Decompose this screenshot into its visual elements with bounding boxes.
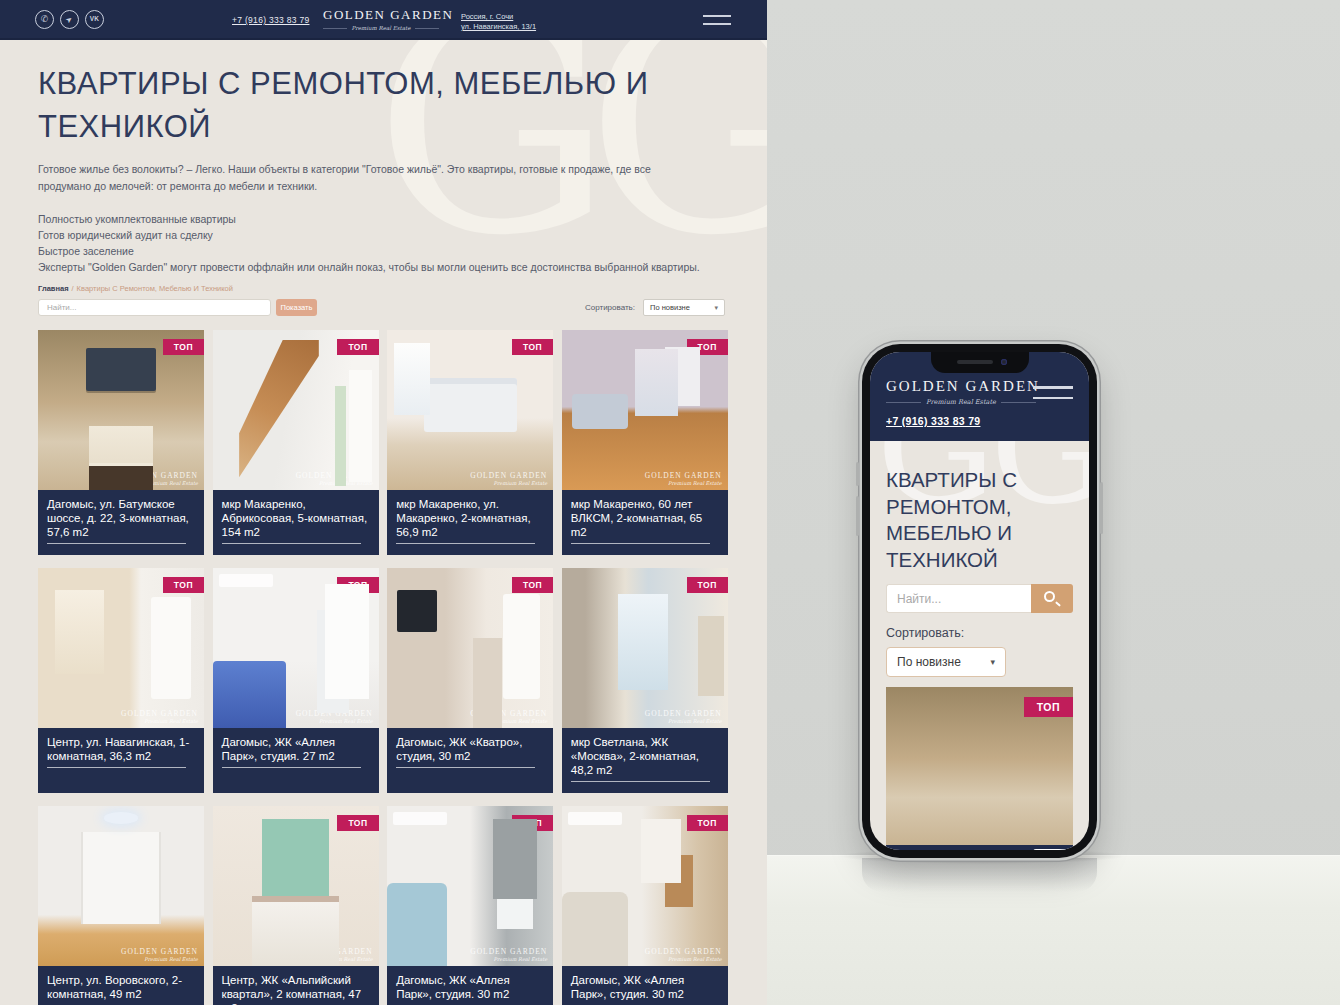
listing-title-link[interactable]: Дагомыс, ЖК «Аллея Парк», студия. 30 m2 xyxy=(571,974,684,1000)
hamburger-menu-icon[interactable] xyxy=(703,15,731,31)
chevron-down-icon: ▾ xyxy=(714,304,718,312)
listing-card[interactable]: ТОП GOLDEN GARDENPremium Real Estate Цен… xyxy=(38,568,204,793)
caption-underline xyxy=(396,543,535,544)
photo-watermark: GOLDEN GARDENPremium Real Estate xyxy=(470,947,547,962)
mobile-search-row xyxy=(886,584,1073,613)
mobile-sort-selected-value: По новизне xyxy=(897,655,961,669)
listing-title-link[interactable]: мкр Макаренко, 60 лет ВЛКСМ, 2-комнатная… xyxy=(571,498,702,538)
feature-item: Быстрое заселение xyxy=(38,244,729,259)
listing-title-link[interactable]: Центр, ул. Воровского, 2-комнатная, 49 m… xyxy=(47,974,182,1000)
logo-rule-left xyxy=(886,402,921,403)
mobile-page-title: КВАРТИРЫ С РЕМОНТОМ, МЕБЕЛЬЮ И ТЕХНИКОЙ xyxy=(886,467,1046,573)
breadcrumb-current: Квартиры С Ремонтом, Мебелью И Техникой xyxy=(77,284,233,293)
logo-rule-right xyxy=(1001,402,1036,403)
photo-watermark: GOLDEN GARDENPremium Real Estate xyxy=(121,471,198,486)
listing-title-link[interactable]: Дагомыс, ЖК «Аллея Парк», студия. 30 m2 xyxy=(396,974,509,1000)
phone-speaker xyxy=(957,360,993,364)
page-title: КВАРТИРЫ С РЕМОНТОМ, МЕБЕЛЬЮ И ТЕХНИКОЙ xyxy=(38,62,678,148)
breadcrumb-separator: / xyxy=(72,284,74,293)
photo-watermark: GOLDEN GARDENPremium Real Estate xyxy=(296,471,373,486)
listing-card[interactable]: GOLDEN GARDENPremium Real Estate Центр, … xyxy=(38,806,204,1005)
promo-badge xyxy=(393,812,447,825)
caption-underline xyxy=(47,543,186,544)
filter-row: Показать Сортировать: По новизне ▾ xyxy=(38,299,729,317)
listing-card[interactable]: ТОП GOLDEN GARDENPremium Real Estate Даг… xyxy=(387,568,553,793)
listing-photo[interactable]: ТОП GOLDEN GARDENPremium Real Estate xyxy=(562,806,728,966)
main-content: GG КВАРТИРЫ С РЕМОНТОМ, МЕБЕЛЬЮ И ТЕХНИК… xyxy=(0,62,767,1005)
listing-title-link[interactable]: мкр Светлана, ЖК «Москва», 2-комнатная, … xyxy=(571,736,699,776)
mobile-search-input[interactable] xyxy=(886,584,1031,613)
listing-photo[interactable]: ТОП GOLDEN GARDENPremium Real Estate xyxy=(562,568,728,728)
caption-underline xyxy=(571,543,710,544)
listing-caption: Центр, ул. Воровского, 2-комнатная, 49 m… xyxy=(38,966,204,1005)
mobile-search-button[interactable] xyxy=(1031,584,1073,613)
intro-paragraph: Готовое жилье без волокиты? – Легко. Наш… xyxy=(38,161,693,195)
screenshot-root: ✆ ➤ VK +7 (916) 333 83 79 GOLDEN GARDEN … xyxy=(0,0,1340,1005)
caption-underline xyxy=(222,767,361,768)
listing-caption: Дагомыс, ЖК «Аллея Парк», студия. 30 m2 xyxy=(387,966,553,1005)
mobile-logo-subtitle-text: Premium Real Estate xyxy=(926,398,996,406)
photo-watermark: GOLDEN GARDENPremium Real Estate xyxy=(296,947,373,962)
recaptcha-badge[interactable]: ⟳ xyxy=(1033,849,1067,850)
listing-photo[interactable]: ТОП GOLDEN GARDENPremium Real Estate xyxy=(562,330,728,490)
search-icon xyxy=(1044,591,1055,602)
logo-subtitle-text: Premium Real Estate xyxy=(351,25,410,31)
listing-card[interactable]: ТОП GOLDEN GARDENPremium Real Estate Даг… xyxy=(562,806,728,1005)
listing-photo[interactable]: ТОП GOLDEN GARDENPremium Real Estate xyxy=(38,330,204,490)
photo-watermark: GOLDEN GARDENPremium Real Estate xyxy=(645,471,722,486)
listing-card[interactable]: ТОП GOLDEN GARDENPremium Real Estate мкр… xyxy=(213,330,379,555)
listing-caption: Дагомыс, ЖК «Аллея Парк», студия. 27 m2 xyxy=(213,728,379,793)
listing-card[interactable]: ТОП GOLDEN GARDENPremium Real Estate мкр… xyxy=(387,330,553,555)
mobile-content: GG КВАРТИРЫ С РЕМОНТОМ, МЕБЕЛЬЮ И ТЕХНИК… xyxy=(870,467,1089,850)
mobile-sort-select[interactable]: По новизне ▾ xyxy=(886,647,1006,677)
phone-screen: GOLDEN GARDEN Premium Real Estate +7 (91… xyxy=(870,352,1089,850)
photo-watermark: GOLDEN GARDENPremium Real Estate xyxy=(470,471,547,486)
caption-underline xyxy=(222,543,361,544)
feature-list: Полностью укомплектованные квартиры Гото… xyxy=(38,212,729,275)
caption-underline xyxy=(571,781,710,782)
logo[interactable]: GOLDEN GARDEN Premium Real Estate xyxy=(323,7,439,31)
promo-badge xyxy=(568,812,622,825)
listing-caption: Дагомыс, ЖК «Аллея Парк», студия. 30 m2 xyxy=(562,966,728,1005)
caption-underline xyxy=(47,767,186,768)
top-badge: ТОП xyxy=(1024,697,1073,717)
phone-notch xyxy=(931,352,1029,373)
phone-reflection xyxy=(862,858,1097,892)
listing-photo[interactable]: ТОП GOLDEN GARDENPremium Real Estate xyxy=(213,806,379,966)
listing-card[interactable]: ТОП GOLDEN GARDENPremium Real Estate Цен… xyxy=(213,806,379,1005)
address-line-2: ул. Навагинская, 13/1 xyxy=(461,22,536,32)
address-line-1: Россия, г. Сочи xyxy=(461,12,536,22)
top-badge: ТОП xyxy=(687,577,728,593)
phone-mockup-scene: GOLDEN GARDEN Premium Real Estate +7 (91… xyxy=(767,0,1340,1005)
feature-item: Полностью укомплектованные квартиры xyxy=(38,212,729,227)
phone-power-button xyxy=(1100,482,1103,534)
listing-photo[interactable]: ТОП GOLDEN GARDENPremium Real Estate xyxy=(213,568,379,728)
chevron-down-icon: ▾ xyxy=(990,657,995,667)
top-badge: ТОП xyxy=(512,339,553,355)
top-badge: ТОП xyxy=(337,339,378,355)
sort-label: Сортировать: xyxy=(585,303,635,312)
social-links: ✆ ➤ VK xyxy=(35,10,104,29)
listing-caption: Дагомыс, ул. Батумское шоссе, д. 22, 3-к… xyxy=(38,490,204,555)
show-button[interactable]: Показать xyxy=(276,299,317,316)
listing-title-link[interactable]: Дагомыс, ул. Батумское шоссе, д. 22, 3-к… xyxy=(47,498,189,538)
phone-volume-button xyxy=(856,462,859,486)
phone-mockup: GOLDEN GARDEN Premium Real Estate +7 (91… xyxy=(862,344,1097,858)
listing-caption: мкр Светлана, ЖК «Москва», 2-комнатная, … xyxy=(562,728,728,793)
top-badge: ТОП xyxy=(163,577,204,593)
caption-underline xyxy=(396,767,535,768)
mobile-logo-subtitle: Premium Real Estate xyxy=(886,398,1036,406)
listing-caption: мкр Макаренко, ул. Макаренко, 2-комнатна… xyxy=(387,490,553,555)
listing-photo[interactable]: ТОП GOLDEN GARDENPremium Real Estate xyxy=(213,330,379,490)
listing-photo[interactable]: GOLDEN GARDENPremium Real Estate xyxy=(38,806,204,966)
header-phone-link[interactable]: +7 (916) 333 83 79 xyxy=(232,15,309,25)
listing-title-link[interactable]: мкр Макаренко, Абрикосовая, 5-комнатная,… xyxy=(222,498,368,538)
sort-selected-value: По новизне xyxy=(650,303,690,312)
listing-title-link[interactable]: Дагомыс, ЖК «Кватро», студия, 30 m2 xyxy=(396,736,522,762)
top-badge: ТОП xyxy=(163,339,204,355)
logo-rule-right xyxy=(415,28,439,29)
listing-title-link[interactable]: Центр, ЖК «Альпийский квартал», 2 комнат… xyxy=(222,974,362,1005)
photo-watermark: GOLDEN GARDENPremium Real Estate xyxy=(296,709,373,724)
listings-grid: ТОП GOLDEN GARDENPremium Real Estate Даг… xyxy=(38,330,729,1005)
logo-subtitle: Premium Real Estate xyxy=(323,25,439,31)
listing-photo[interactable]: ТОП GOLDEN GARDENPremium Real Estate xyxy=(38,568,204,728)
photo-watermark: GOLDEN GARDENPremium Real Estate xyxy=(121,709,198,724)
breadcrumb: Главная/Квартиры С Ремонтом, Мебелью И Т… xyxy=(38,284,729,293)
phone-volume-button xyxy=(856,496,859,536)
breadcrumb-home-link[interactable]: Главная xyxy=(38,284,69,293)
feature-item: Эксперты "Golden Garden" могут провести … xyxy=(38,260,729,275)
top-badge: ТОП xyxy=(337,577,378,593)
listing-card[interactable]: ТОП GOLDEN GARDENPremium Real Estate мкр… xyxy=(562,330,728,555)
photo-watermark: GOLDEN GARDENPremium Real Estate xyxy=(470,709,547,724)
phone-camera xyxy=(1001,359,1007,365)
logo-rule-left xyxy=(323,28,347,29)
feature-item: Готов юридический аудит на сделку xyxy=(38,228,729,243)
photo-watermark: GOLDEN GARDENPremium Real Estate xyxy=(121,947,198,962)
listing-photo[interactable]: ТОП GOLDEN GARDENPremium Real Estate xyxy=(387,330,553,490)
listing-caption: Центр, ул. Навагинская, 1-комнатная, 36,… xyxy=(38,728,204,793)
listing-photo[interactable]: ТОП GOLDEN GARDENPremium Real Estate xyxy=(387,806,553,966)
desktop-site: ✆ ➤ VK +7 (916) 333 83 79 GOLDEN GARDEN … xyxy=(0,0,767,1005)
listing-caption: мкр Макаренко, Абрикосовая, 5-комнатная,… xyxy=(213,490,379,555)
listing-card[interactable]: ТОП GOLDEN GARDENPremium Real Estate Даг… xyxy=(38,330,204,555)
vk-icon[interactable]: VK xyxy=(85,10,104,29)
top-badge: ТОП xyxy=(337,815,378,831)
top-badge: ТОП xyxy=(512,815,553,831)
telegram-icon[interactable]: ➤ xyxy=(60,10,79,29)
photo-watermark: GOLDEN GARDENPremium Real Estate xyxy=(645,947,722,962)
search-input[interactable] xyxy=(38,299,271,316)
logo-title: GOLDEN GARDEN xyxy=(323,7,439,23)
site-header: ✆ ➤ VK +7 (916) 333 83 79 GOLDEN GARDEN … xyxy=(0,0,767,40)
listing-card[interactable]: ТОП GOLDEN GARDENPremium Real Estate Даг… xyxy=(387,806,553,1005)
mobile-hamburger-menu-icon[interactable] xyxy=(1033,386,1073,407)
listing-caption: Дагомыс, ЖК «Кватро», студия, 30 m2 xyxy=(387,728,553,793)
listing-photo[interactable]: ТОП GOLDEN GARDENPremium Real Estate xyxy=(387,568,553,728)
top-badge: ТОП xyxy=(687,815,728,831)
sort-select[interactable]: По новизне ▾ xyxy=(643,299,725,316)
mobile-listing-card[interactable]: ТОП Дагомыс, ул. Батумское шоссе, д. 22,… xyxy=(886,687,1073,850)
listing-title-link[interactable]: Центр, ул. Навагинская, 1-комнатная, 36,… xyxy=(47,736,189,762)
sort-control: Сортировать: По новизне ▾ xyxy=(585,299,725,316)
listing-title-link[interactable]: Дагомыс, ЖК «Аллея Парк», студия. 27 m2 xyxy=(222,736,335,762)
listing-caption: Центр, ЖК «Альпийский квартал», 2 комнат… xyxy=(213,966,379,1005)
mobile-sort-label: Сортировать: xyxy=(886,626,1073,640)
mobile-listing-caption: Дагомыс, ул. Батумское шоссе, д. 22, 3-к… xyxy=(886,845,1073,850)
header-address[interactable]: Россия, г. Сочи ул. Навагинская, 13/1 xyxy=(461,12,536,32)
photo-watermark: GOLDEN GARDENPremium Real Estate xyxy=(645,709,722,724)
mobile-phone-link[interactable]: +7 (916) 333 83 79 xyxy=(886,415,980,427)
listing-title-link[interactable]: мкр Макаренко, ул. Макаренко, 2-комнатна… xyxy=(396,498,531,538)
listing-card[interactable]: ТОП GOLDEN GARDENPremium Real Estate мкр… xyxy=(562,568,728,793)
listing-card[interactable]: ТОП GOLDEN GARDENPremium Real Estate Даг… xyxy=(213,568,379,793)
whatsapp-icon[interactable]: ✆ xyxy=(35,10,54,29)
listing-caption: мкр Макаренко, 60 лет ВЛКСМ, 2-комнатная… xyxy=(562,490,728,555)
top-badge: ТОП xyxy=(512,577,553,593)
mobile-listing-photo[interactable]: ТОП xyxy=(886,687,1073,845)
top-badge: ТОП xyxy=(687,339,728,355)
promo-badge xyxy=(219,574,273,587)
